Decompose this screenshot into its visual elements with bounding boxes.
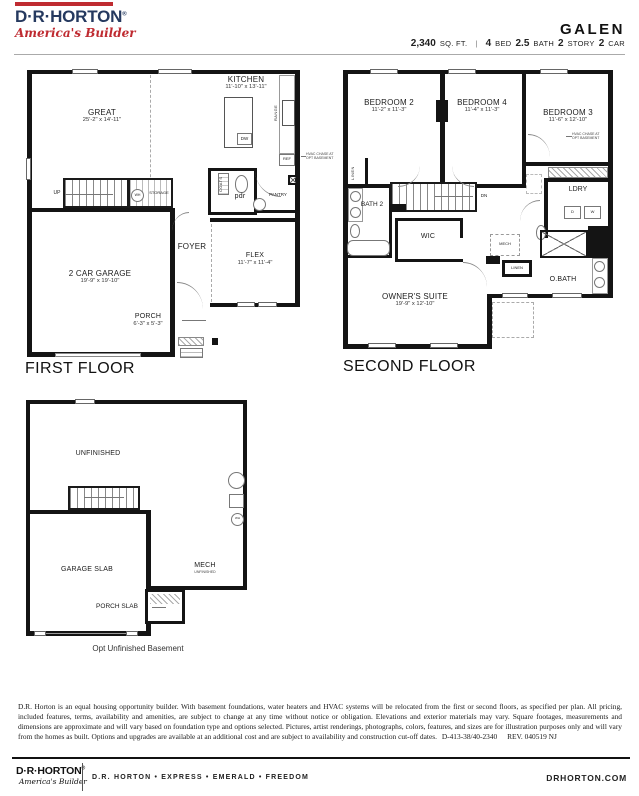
- porch-steps: [180, 348, 203, 358]
- wall: [526, 162, 613, 166]
- hvac-note-2f: HVAC CHASE AT OPT BASEMENT: [572, 132, 604, 141]
- document-code: D-413-38/40-2340: [442, 732, 497, 741]
- window-marker: [72, 69, 98, 74]
- story-value: 2: [558, 38, 564, 49]
- footer-logo-tagline: America's Builder: [19, 777, 87, 786]
- porch-leader: [182, 320, 206, 321]
- story-label: STORY: [568, 39, 595, 48]
- footer-logo-text: D·R·HORTON: [16, 765, 81, 777]
- sink-fixture: [594, 261, 605, 272]
- note-leader: [566, 136, 572, 137]
- basement-stairs: [68, 486, 140, 510]
- sink-fixture: [594, 277, 605, 288]
- logo-red-bar: [15, 2, 113, 6]
- shower: [540, 230, 588, 258]
- wall: [522, 74, 526, 186]
- washer-label: W: [584, 210, 601, 215]
- wall: [395, 259, 463, 262]
- window-marker: [75, 399, 95, 404]
- spec-separator: |: [475, 39, 477, 48]
- room-great: GREAT 25'-2" x 14'-11": [57, 108, 147, 124]
- first-floor-title: FIRST FLOOR: [25, 360, 135, 378]
- wall: [26, 400, 30, 636]
- revision-code: REV. 040519 NJ: [507, 732, 557, 741]
- wall: [544, 178, 613, 182]
- registered-mark: ®: [122, 11, 126, 17]
- room-ldry: LDRY: [552, 186, 604, 194]
- bed-value: 4: [486, 38, 492, 49]
- flyer-page: D·R·HORTON® America's Builder GALEN 2,34…: [0, 0, 639, 796]
- window-marker: [26, 158, 31, 180]
- garage-door-marker: [55, 353, 141, 357]
- window-marker: [237, 302, 255, 307]
- dn-label: DN: [477, 193, 491, 198]
- wall: [26, 510, 151, 514]
- second-floor-title: SECOND FLOOR: [343, 358, 476, 376]
- room-name: GREAT: [57, 108, 147, 117]
- dishwasher-label: DW: [237, 136, 252, 141]
- hvac-note-1f: HVAC CHASE AT OPT BASEMENT: [306, 152, 336, 161]
- stairs-up: [63, 178, 129, 208]
- sqft-value: 2,340: [411, 38, 436, 49]
- front-door-arc: [177, 282, 203, 309]
- page-title: GALEN: [560, 21, 625, 38]
- wall: [295, 70, 300, 220]
- dryer-label: D: [564, 210, 581, 215]
- header-divider: [14, 54, 625, 55]
- website-link: DRHORTON.COM: [546, 773, 627, 783]
- room-wic: WIC: [398, 233, 458, 241]
- room-dims: 11'-7" x 11'-4": [220, 260, 290, 267]
- porch-post: [212, 338, 218, 345]
- room-dims: 11'-10" x 13'-11": [208, 84, 284, 91]
- window-marker: [540, 69, 568, 74]
- room-dims: 11'-2" x 11'-3": [345, 107, 433, 114]
- room-foyer: FOYER: [160, 242, 224, 251]
- mech-label: MECH: [490, 242, 520, 247]
- room-obath: O.BATH: [532, 276, 594, 284]
- room-name: BEDROOM 3: [528, 108, 608, 117]
- window-marker: [552, 293, 582, 298]
- window-marker: [502, 293, 528, 298]
- water-heater-label: WH: [131, 193, 144, 197]
- logo-text: D·R·HORTON: [15, 7, 122, 26]
- logo-tagline: America's Builder: [15, 26, 136, 40]
- room-name: 2 CAR GARAGE: [55, 269, 145, 278]
- footer-divider: [82, 763, 83, 791]
- room-name: FLEX: [220, 252, 290, 260]
- drhorton-logo: D·R·HORTON®: [15, 7, 126, 27]
- window-marker: [258, 302, 277, 307]
- window-marker: [370, 69, 398, 74]
- room-bath2: BATH 2: [354, 201, 390, 209]
- sqft-label: SQ. FT.: [440, 39, 468, 48]
- wall: [395, 218, 463, 221]
- room-garage-slab: GARAGE SLAB: [47, 566, 127, 574]
- basement-caption: Opt Unfinished Basement: [58, 644, 218, 653]
- legal-disclaimer: D.R. Horton is an equal housing opportun…: [18, 702, 622, 741]
- door-arc: [528, 134, 550, 157]
- room-kitchen: KITCHEN 11'-10" x 13'-11": [208, 75, 284, 91]
- room-name: OWNER'S SUITE: [365, 292, 465, 301]
- stair-arrow: [84, 497, 124, 498]
- chase-dashed-box: [526, 174, 542, 194]
- room-owners-suite: OWNER'S SUITE 19'-9" x 12'-10": [365, 292, 465, 308]
- bedroom3-closet: [548, 167, 608, 178]
- chase-block: [486, 256, 500, 264]
- room-garage: 2 CAR GARAGE 19'-9" x 19'-10": [55, 269, 145, 285]
- car-label: CAR: [608, 39, 625, 48]
- range-label: RANGE: [274, 101, 279, 125]
- wall: [27, 208, 175, 212]
- room-bedroom3: BEDROOM 3 11'-6" x 12'-10": [528, 108, 608, 124]
- room-name: PORCH: [113, 313, 183, 321]
- stair-arrow: [435, 196, 473, 197]
- wall: [210, 303, 300, 307]
- optional-area-dashed: [492, 302, 534, 338]
- room-bedroom2: BEDROOM 2 11'-2" x 11'-3": [345, 98, 433, 114]
- stair-cap: [390, 204, 406, 212]
- linen-center-label: LINEN: [504, 266, 530, 271]
- window-marker: [430, 343, 458, 348]
- flex-opening-dashed: [211, 224, 212, 302]
- porch-slab-hatch: [178, 337, 204, 346]
- room-dims: 19'-9" x 12'-10": [365, 301, 465, 308]
- second-floor-plan: LINEN BATH 2 DN WIC MECH LINEN LDRY D W: [340, 70, 630, 375]
- range: [282, 100, 295, 126]
- room-bedroom4: BEDROOM 4 11'-4" x 11'-3": [442, 98, 522, 114]
- powder-room-walls: [208, 168, 257, 215]
- room-name: BEDROOM 2: [345, 98, 433, 107]
- wall: [608, 70, 613, 298]
- door-arc: [520, 200, 540, 221]
- room-dims: 25'-2" x 14'-11": [57, 117, 147, 124]
- room-dims: 19'-9" x 19'-10": [55, 278, 145, 285]
- room-mech: MECH UNFINISHED: [170, 562, 240, 575]
- spec-summary: 2,340SQ. FT. | 4BED 2.5BATH 2STORY 2CAR: [411, 38, 625, 49]
- wall: [460, 218, 463, 238]
- toilet-fixture: [350, 224, 360, 238]
- up-label: UP: [51, 191, 63, 197]
- bath-value: 2.5: [515, 38, 529, 49]
- porch-slab-hatch: [150, 594, 180, 604]
- bath-label: BATH: [533, 39, 554, 48]
- room-name: KITCHEN: [208, 75, 284, 84]
- room-pantry: PANTRY: [262, 192, 294, 197]
- room-name: BEDROOM 4: [442, 98, 522, 107]
- room-flex: FLEX 11'-7" x 11'-4": [220, 252, 290, 267]
- refrigerator-label: REF: [279, 157, 295, 162]
- wall: [343, 344, 492, 349]
- toilet-fixture: [235, 175, 248, 193]
- window-marker: [368, 343, 396, 348]
- wall: [26, 400, 247, 404]
- first-floor-plan: COATS DW RANGE REF HVAC CHASE AT OPT BAS…: [25, 70, 337, 382]
- bed-label: BED: [495, 39, 511, 48]
- room-dims: 6'-3" x 5'-3": [113, 321, 183, 328]
- wall: [257, 210, 300, 213]
- garage-door-line: [46, 633, 126, 634]
- wall: [170, 210, 175, 356]
- stair-arrow: [65, 194, 113, 195]
- bathtub: [347, 240, 390, 256]
- linen-left-label: LINEN: [351, 161, 356, 185]
- room-sub: UNFINISHED: [170, 570, 240, 574]
- water-heater: [228, 472, 245, 489]
- room-porch: PORCH 6'-3" x 5'-3": [113, 313, 183, 328]
- room-pdr: pdr: [225, 193, 255, 201]
- window-marker: [158, 69, 192, 74]
- wall: [295, 218, 300, 307]
- brand-list: D.R. HORTON • EXPRESS • EMERALD • FREEDO…: [92, 774, 309, 781]
- chase-block: [588, 226, 608, 258]
- note-leader: [301, 156, 306, 157]
- footer-rule: [12, 757, 630, 759]
- room-name: MECH: [170, 562, 240, 570]
- wall: [440, 74, 445, 186]
- room-porch-slab: PORCH SLAB: [82, 603, 152, 611]
- coats-label: COATS: [219, 174, 224, 194]
- storage-label: STORAGE: [145, 191, 173, 196]
- sump-label: WH: [231, 517, 244, 521]
- porch-slab-leader: [152, 607, 166, 608]
- room-unfinished: UNFINISHED: [58, 450, 138, 458]
- basement-plan: WH UNFINISHED GARAGE SLAB MECH UNFINISHE…: [26, 400, 266, 662]
- door-jamb: [126, 631, 138, 636]
- attic-access-icon: [288, 175, 298, 185]
- window-marker: [448, 69, 476, 74]
- room-dims: 11'-6" x 12'-10": [528, 117, 608, 124]
- door-jamb: [34, 631, 46, 636]
- door-arc: [463, 262, 487, 287]
- wall: [27, 70, 32, 357]
- utility-box: [229, 494, 244, 508]
- wall: [210, 218, 300, 222]
- footer-logo: D·R·HORTON®: [16, 765, 85, 777]
- car-value: 2: [599, 38, 605, 49]
- room-dims: 11'-4" x 11'-3": [442, 107, 522, 114]
